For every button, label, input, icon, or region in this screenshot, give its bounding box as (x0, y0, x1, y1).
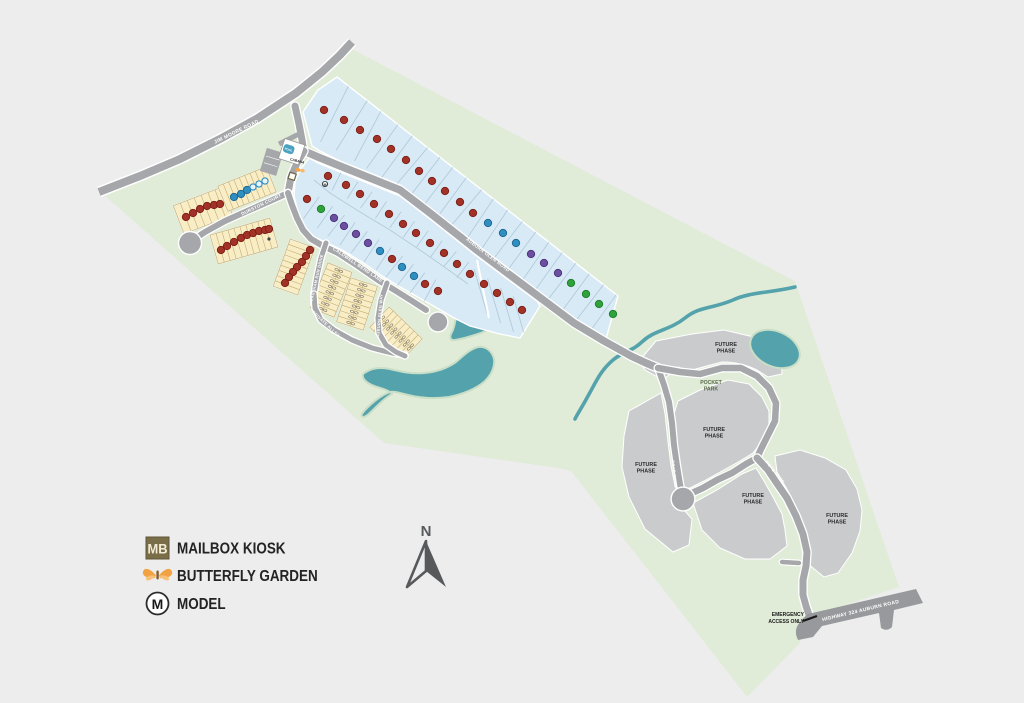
svg-text:EMERGENCY: EMERGENCY (772, 612, 805, 618)
svg-text:PHASE: PHASE (637, 469, 656, 475)
svg-text:ACCESS ONLY: ACCESS ONLY (768, 619, 804, 625)
svg-text:FUTURE: FUTURE (703, 427, 725, 433)
svg-text:M: M (152, 596, 164, 612)
svg-text:MODEL: MODEL (177, 596, 226, 613)
svg-text:N: N (421, 523, 432, 540)
svg-text:MAILBOX KIOSK: MAILBOX KIOSK (177, 541, 286, 558)
svg-text:MB: MB (148, 541, 168, 557)
svg-text:POCKET: POCKET (700, 380, 722, 386)
svg-text:PHASE: PHASE (705, 434, 724, 440)
svg-text:FUTURE: FUTURE (742, 493, 764, 499)
svg-text:PHASE: PHASE (828, 520, 847, 526)
svg-text:PARK: PARK (704, 386, 719, 392)
svg-text:PHASE: PHASE (717, 349, 736, 355)
svg-text:FUTURE: FUTURE (635, 462, 657, 468)
svg-text:FUTURE: FUTURE (826, 513, 848, 519)
svg-text:M: M (324, 183, 327, 187)
svg-text:FUTURE: FUTURE (715, 342, 737, 348)
svg-text:BUTTERFLY GARDEN: BUTTERFLY GARDEN (177, 568, 318, 585)
svg-text:PHASE: PHASE (744, 500, 763, 506)
